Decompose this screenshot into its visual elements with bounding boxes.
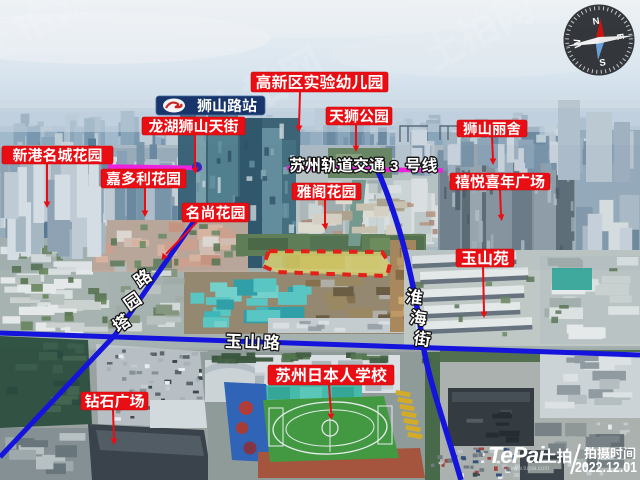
svg-text:2022.12.01: 2022.12.01: [575, 460, 637, 476]
svg-text:TePai: TePai: [488, 442, 545, 468]
svg-text:www.tupai.com: www.tupai.com: [508, 466, 549, 472]
svg-text:3: 3: [390, 158, 398, 175]
